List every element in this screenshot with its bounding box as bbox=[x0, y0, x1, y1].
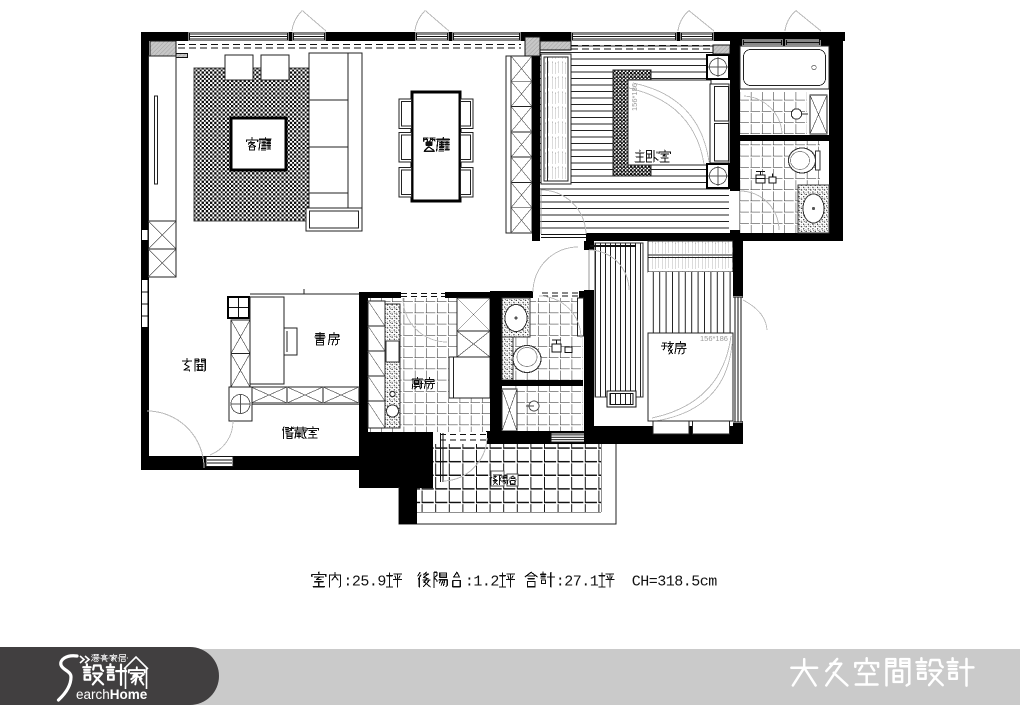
svg-text::1.2: :1.2 bbox=[465, 573, 499, 590]
svg-text:156*186: 156*186 bbox=[700, 334, 728, 343]
svg-text:156*186: 156*186 bbox=[630, 83, 639, 111]
svg-text:earchHome: earchHome bbox=[76, 687, 148, 702]
svg-text:CH=318.5cm: CH=318.5cm bbox=[632, 573, 718, 590]
svg-text::27.1: :27.1 bbox=[556, 573, 599, 590]
svg-text::25.9: :25.9 bbox=[343, 573, 386, 590]
